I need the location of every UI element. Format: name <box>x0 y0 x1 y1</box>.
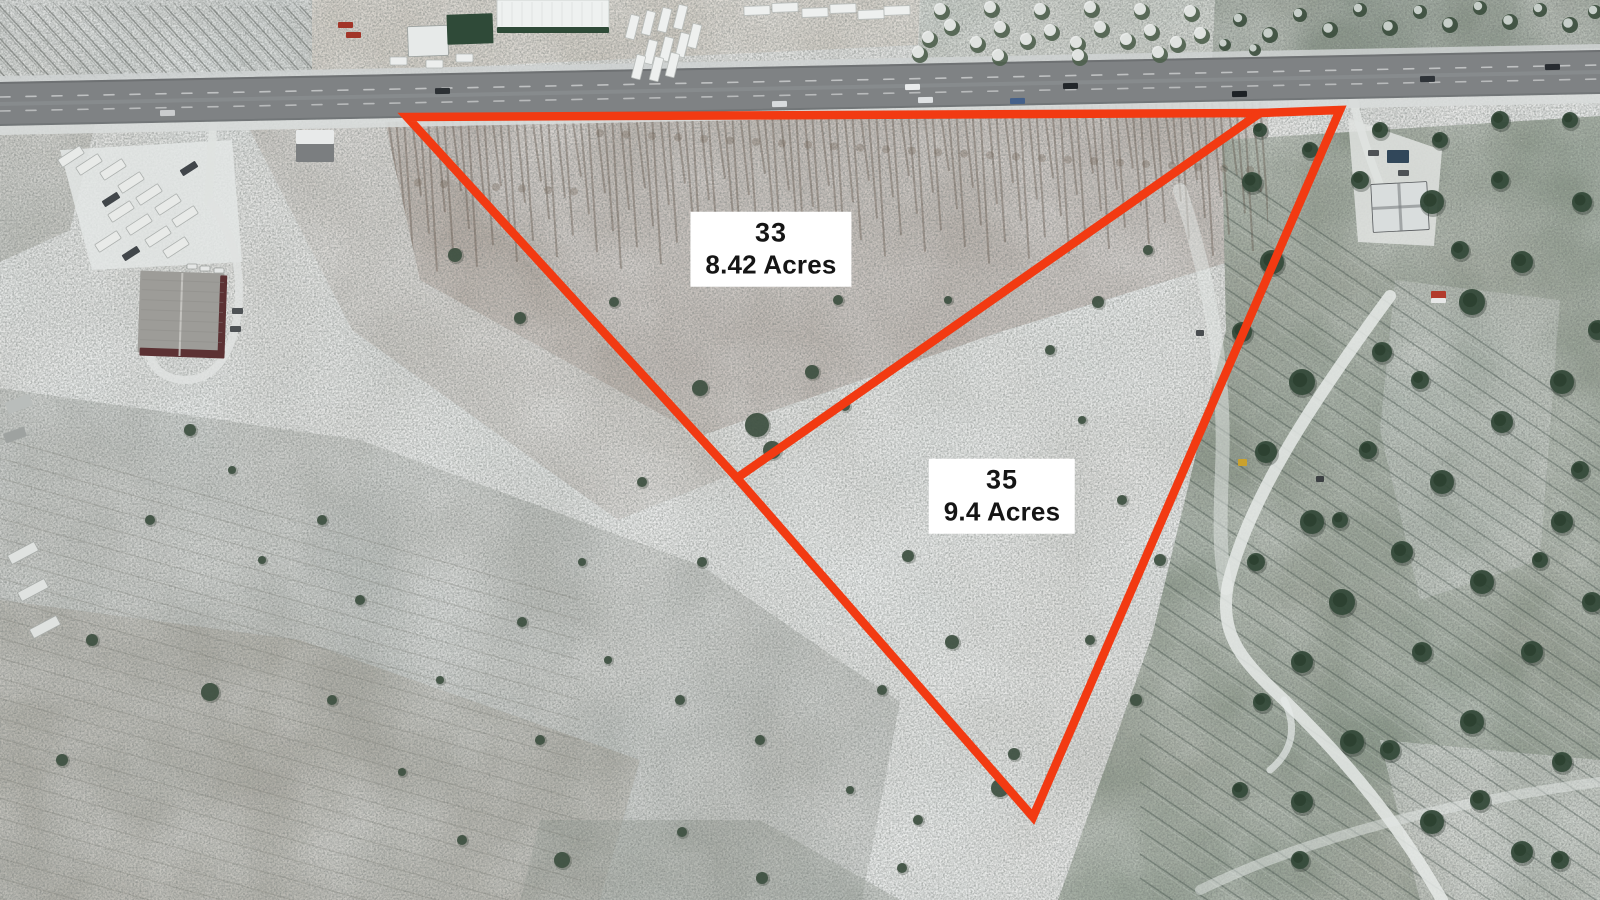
aerial-photo: 33 8.42 Acres 35 9.4 Acres <box>0 0 1600 900</box>
lot-number-35: 35 <box>944 465 1060 497</box>
parcel-label-33: 33 8.42 Acres <box>690 212 851 287</box>
lot-acreage-33: 8.42 Acres <box>705 250 836 281</box>
parcel-label-35: 35 9.4 Acres <box>929 459 1075 534</box>
lot-acreage-35: 9.4 Acres <box>944 497 1060 528</box>
aerial-scene <box>0 0 1600 900</box>
lot-number-33: 33 <box>705 218 836 250</box>
